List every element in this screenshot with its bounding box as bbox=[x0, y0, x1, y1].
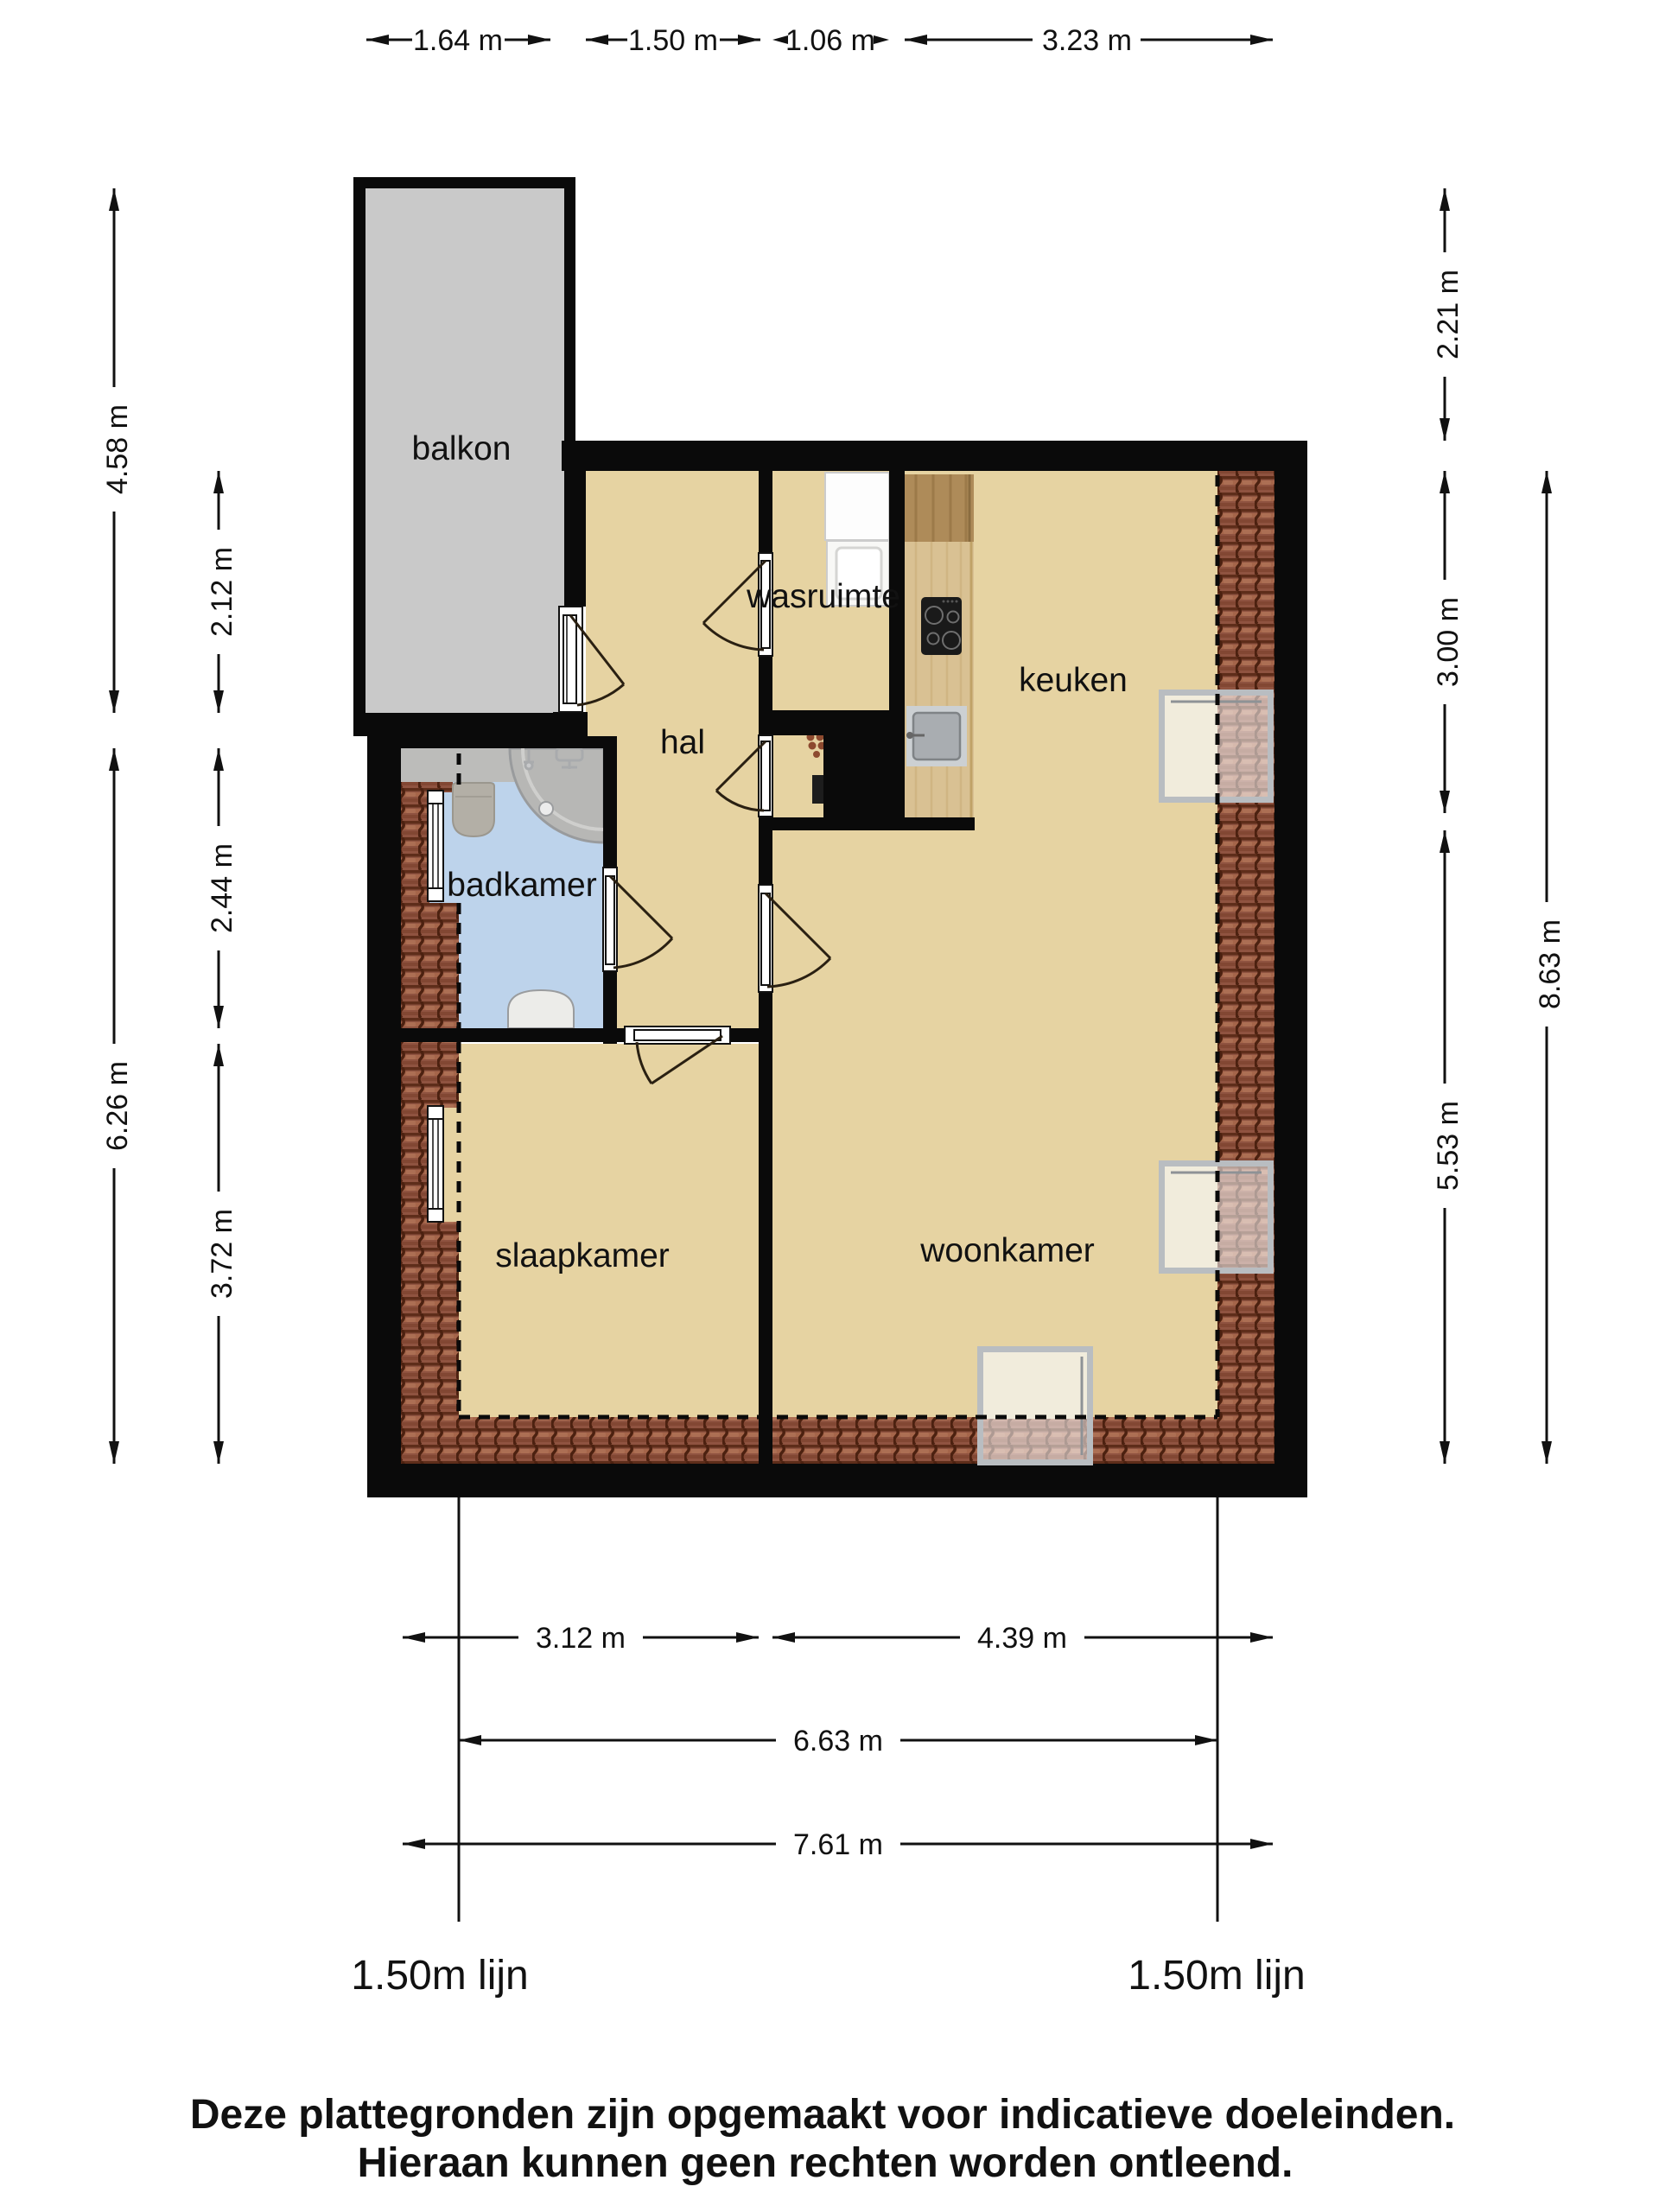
svg-text:6.63 m: 6.63 m bbox=[793, 1725, 883, 1758]
svg-text:balkon: balkon bbox=[412, 430, 512, 467]
svg-text:Deze plattegronden zijn opgema: Deze plattegronden zijn opgemaakt voor i… bbox=[190, 2092, 1455, 2138]
svg-text:1.64 m: 1.64 m bbox=[413, 24, 503, 57]
svg-text:2.21 m: 2.21 m bbox=[1432, 270, 1465, 359]
svg-text:1.50m lijn: 1.50m lijn bbox=[1128, 1953, 1305, 1999]
svg-text:hal: hal bbox=[660, 724, 705, 761]
svg-text:7.61 m: 7.61 m bbox=[793, 1828, 883, 1861]
svg-text:3.00 m: 3.00 m bbox=[1432, 597, 1465, 687]
svg-text:6.26 m: 6.26 m bbox=[101, 1061, 134, 1151]
svg-text:Hieraan kunnen geen rechten wo: Hieraan kunnen geen rechten worden ontle… bbox=[358, 2140, 1294, 2186]
svg-text:3.12 m: 3.12 m bbox=[536, 1622, 626, 1655]
svg-text:woonkamer: woonkamer bbox=[919, 1232, 1095, 1269]
svg-text:2.44 m: 2.44 m bbox=[206, 843, 238, 933]
svg-text:keuken: keuken bbox=[1019, 662, 1128, 699]
svg-text:badkamer: badkamer bbox=[447, 867, 596, 904]
svg-text:8.63 m: 8.63 m bbox=[1534, 919, 1567, 1009]
svg-text:1.06 m: 1.06 m bbox=[785, 24, 875, 57]
svg-text:1.50 m: 1.50 m bbox=[628, 24, 718, 57]
svg-text:1.50m lijn: 1.50m lijn bbox=[351, 1953, 528, 1999]
svg-text:wasruimte: wasruimte bbox=[746, 578, 900, 615]
svg-text:slaapkamer: slaapkamer bbox=[495, 1237, 670, 1274]
svg-text:3.72 m: 3.72 m bbox=[206, 1209, 238, 1299]
svg-text:2.12 m: 2.12 m bbox=[206, 547, 238, 637]
svg-text:4.39 m: 4.39 m bbox=[977, 1622, 1067, 1655]
svg-text:3.23 m: 3.23 m bbox=[1042, 24, 1132, 57]
svg-text:5.53 m: 5.53 m bbox=[1432, 1101, 1465, 1191]
svg-text:4.58 m: 4.58 m bbox=[101, 404, 134, 494]
